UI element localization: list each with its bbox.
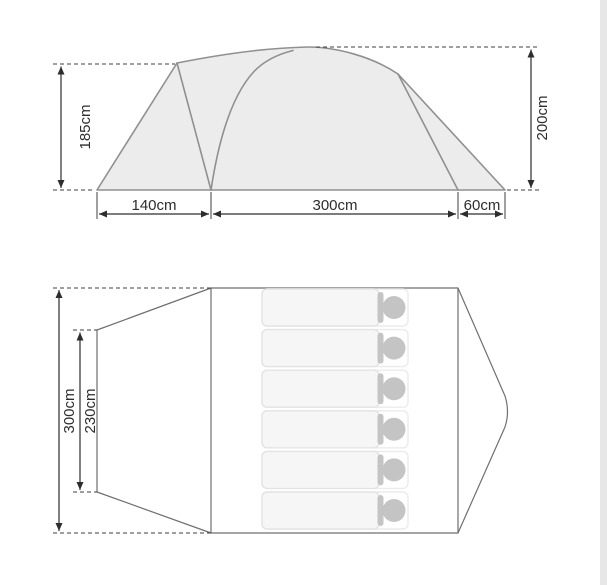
sleeping-mat: [262, 370, 408, 407]
sleeping-mat: [262, 492, 408, 529]
sleeping-mat: [262, 330, 408, 367]
sleeping-mat: [262, 411, 408, 448]
label-porch-width: 140cm: [131, 197, 176, 214]
side-view-diagram: 185cm 200cm 140cm 300cm 60cm: [53, 47, 551, 219]
label-plan-outer-length: 300cm: [61, 388, 78, 433]
page-edge-strip: [600, 0, 607, 585]
top-view-diagram: 300cm 230cm: [53, 288, 508, 533]
tent-dimension-diagram: 185cm 200cm 140cm 300cm 60cm 300cm: [0, 0, 607, 585]
tent-silhouette: [97, 47, 505, 190]
diagram-canvas: 185cm 200cm 140cm 300cm 60cm 300cm: [0, 0, 607, 585]
plan-porch-outline: [97, 288, 211, 533]
label-height-right: 200cm: [534, 95, 551, 140]
label-height-left: 185cm: [77, 104, 94, 149]
sleeping-mat: [262, 451, 408, 488]
label-plan-inner-length: 230cm: [82, 388, 99, 433]
label-rear-width: 60cm: [464, 197, 501, 214]
label-main-width: 300cm: [312, 197, 357, 214]
sleeping-mat: [262, 289, 408, 326]
plan-rear-point-outline: [458, 288, 508, 533]
